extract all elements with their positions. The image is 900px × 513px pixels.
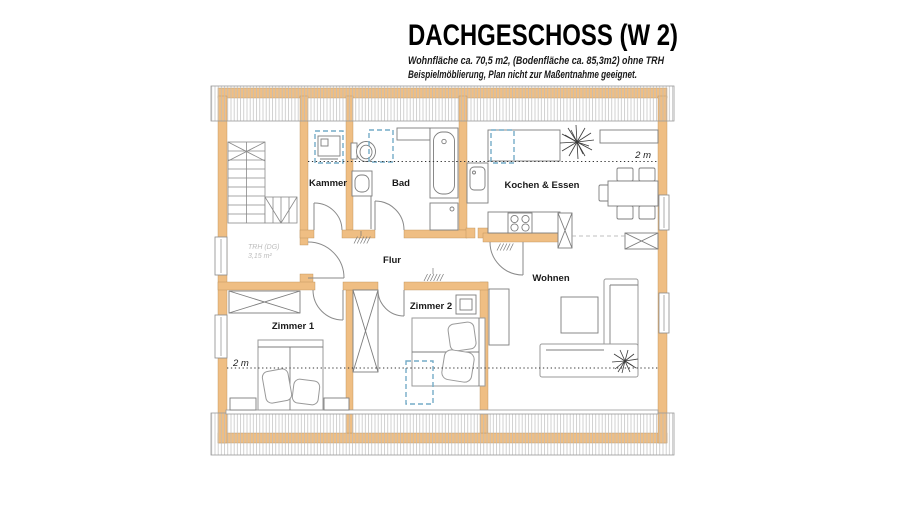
wardrobe-zimmer1 [229,291,300,313]
label-2m-top: 2 m [634,150,651,161]
floor-plan-page: DACHGESCHOSS (W 2) Wohnfläche ca. 70,5 m… [0,0,900,513]
subtitle-line-1: Wohnfläche ca. 70,5 m2, (Bodenfläche ca.… [408,55,665,67]
window-wohnen [659,293,669,333]
wall-zimmer2-top-right [404,282,488,290]
bath-shelf [397,128,430,140]
header: DACHGESCHOSS (W 2) Wohnfläche ca. 70,5 m… [408,19,678,81]
nightstand-right [324,398,349,410]
floor-plan-drawing: DACHGESCHOSS (W 2) Wohnfläche ca. 70,5 m… [0,0,900,513]
washing-machine-icon [318,136,340,159]
door-kammer [314,203,342,230]
wardrobe-zimmer2 [353,290,378,372]
door-zimmer1 [313,290,343,320]
door-entry [308,242,344,278]
label-bad: Bad [392,178,410,189]
wall-zimmer2-top-left [343,282,378,290]
washbasin-icon [352,171,372,196]
label-kochen-essen: Kochen & Essen [505,180,580,191]
stove-icon [508,213,532,233]
toilet-icon [351,142,376,162]
nightstand-left [230,398,256,410]
staircase [228,142,297,223]
roof-hatch-top [211,86,674,121]
dining-table-icon [599,168,658,219]
label-2m-bottom: 2 m [232,358,249,369]
bathtub-icon [430,128,458,198]
kitchen-counter-top [488,130,560,161]
label-wohnen: Wohnen [532,273,569,284]
bed-zimmer1 [258,340,323,410]
wall-trh-bottom [218,282,315,290]
wall-kammer-bottom-left [300,230,314,238]
page-title: DACHGESCHOSS (W 2) [408,19,678,52]
label-kammer: Kammer [309,178,347,189]
living-room-furniture [489,279,638,377]
window-trh [215,237,227,275]
knee-wall-line [226,410,658,414]
wall-right-exterior [658,96,667,443]
zimmer1-furniture [229,291,349,410]
window-kueche [659,195,669,230]
wall-stub-1 [466,228,475,238]
bath-cabinet [430,203,458,230]
label-zimmer2: Zimmer 2 [410,301,452,312]
window-zimmer1 [215,315,227,358]
door-zimmer2 [378,290,404,316]
shelf-wohnen [489,289,509,345]
label-zimmer1: Zimmer 1 [272,321,315,332]
bed-zimmer2 [412,318,485,386]
coffee-table-icon [561,297,598,333]
wall-bad-bottom [404,230,467,238]
plant-icon-kitchen [560,125,594,159]
door-wohnen [490,242,523,275]
subtitle-line-2: Beispielmöblierung, Plan nicht zur Maßen… [408,69,637,81]
kitchen-sideboard [600,130,658,143]
cabinet-zimmer2 [456,295,476,314]
door-bad [375,201,404,230]
label-flur: Flur [383,255,401,266]
tall-cabinet-kitchen [558,213,572,248]
cabinet-wohnen-top [625,233,658,249]
label-trh: TRH (DG) [248,244,280,251]
label-trh-area: 3,15 m² [248,253,272,260]
roof-hatch-bottom [211,413,674,455]
kitchen-sink-icon [467,163,488,203]
wall-kueche-bottom [483,233,560,242]
